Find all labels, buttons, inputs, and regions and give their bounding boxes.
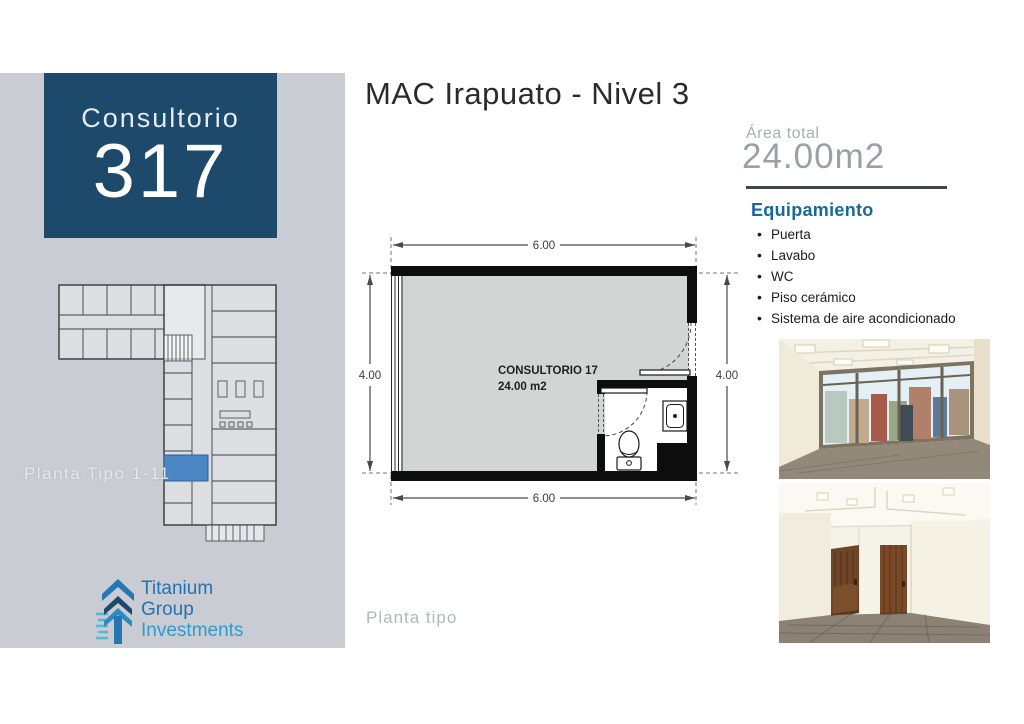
logo-line-2: Group [141, 599, 243, 620]
section-divider [746, 186, 947, 189]
key-plan-caption: Planta Tipo 1-11 [24, 464, 171, 484]
key-plan-elevators [164, 335, 192, 361]
plan-window-wall [392, 276, 403, 471]
unit-number: 317 [93, 136, 229, 208]
equipment-list: Puerta Lavabo WC Piso cerámico Sistema d… [757, 227, 956, 332]
page-title: MAC Irapuato - Nivel 3 [365, 76, 690, 112]
plan-toilet [617, 431, 641, 470]
unit-number-box: Consultorio 317 [44, 73, 277, 238]
titanium-logo-icon [92, 574, 138, 644]
plan-type-caption: Planta tipo [366, 608, 457, 628]
plan-dim-bottom: 6.00 [533, 493, 555, 505]
logo-wordmark: Titanium Group Investments [141, 578, 243, 641]
interior-photo-window [779, 339, 990, 479]
equipment-item: WC [757, 269, 956, 285]
plan-dim-left: 4.00 [359, 370, 381, 382]
plan-dim-right: 4.00 [716, 370, 738, 382]
plan-room-name: CONSULTORIO 17 [498, 365, 598, 377]
plan-sink [663, 401, 687, 431]
equipment-item: Piso cerámico [757, 290, 956, 306]
key-plan-stairs [206, 525, 264, 541]
total-area-value: 24.00m2 [742, 137, 885, 177]
brochure-page: Consultorio 317 [0, 0, 1024, 724]
interior-photo-doors [779, 483, 990, 643]
logo-line-3: Investments [141, 620, 243, 641]
equipment-item: Sistema de aire acondicionado [757, 311, 956, 327]
plan-room-area: 24.00 m2 [498, 381, 547, 393]
equipment-heading: Equipamiento [751, 200, 874, 221]
equipment-item: Puerta [757, 227, 956, 243]
key-plan-right-wing [164, 285, 276, 525]
company-logo: Titanium Group Investments [92, 574, 243, 644]
building-key-plan [56, 277, 296, 549]
logo-dashes [96, 614, 108, 638]
plan-dim-top: 6.00 [533, 240, 555, 252]
unit-floor-plan: CONSULTORIO 17 24.00 m2 6.00 6.00 4.00 4… [358, 233, 743, 511]
equipment-item: Lavabo [757, 248, 956, 264]
logo-line-1: Titanium [141, 578, 243, 599]
